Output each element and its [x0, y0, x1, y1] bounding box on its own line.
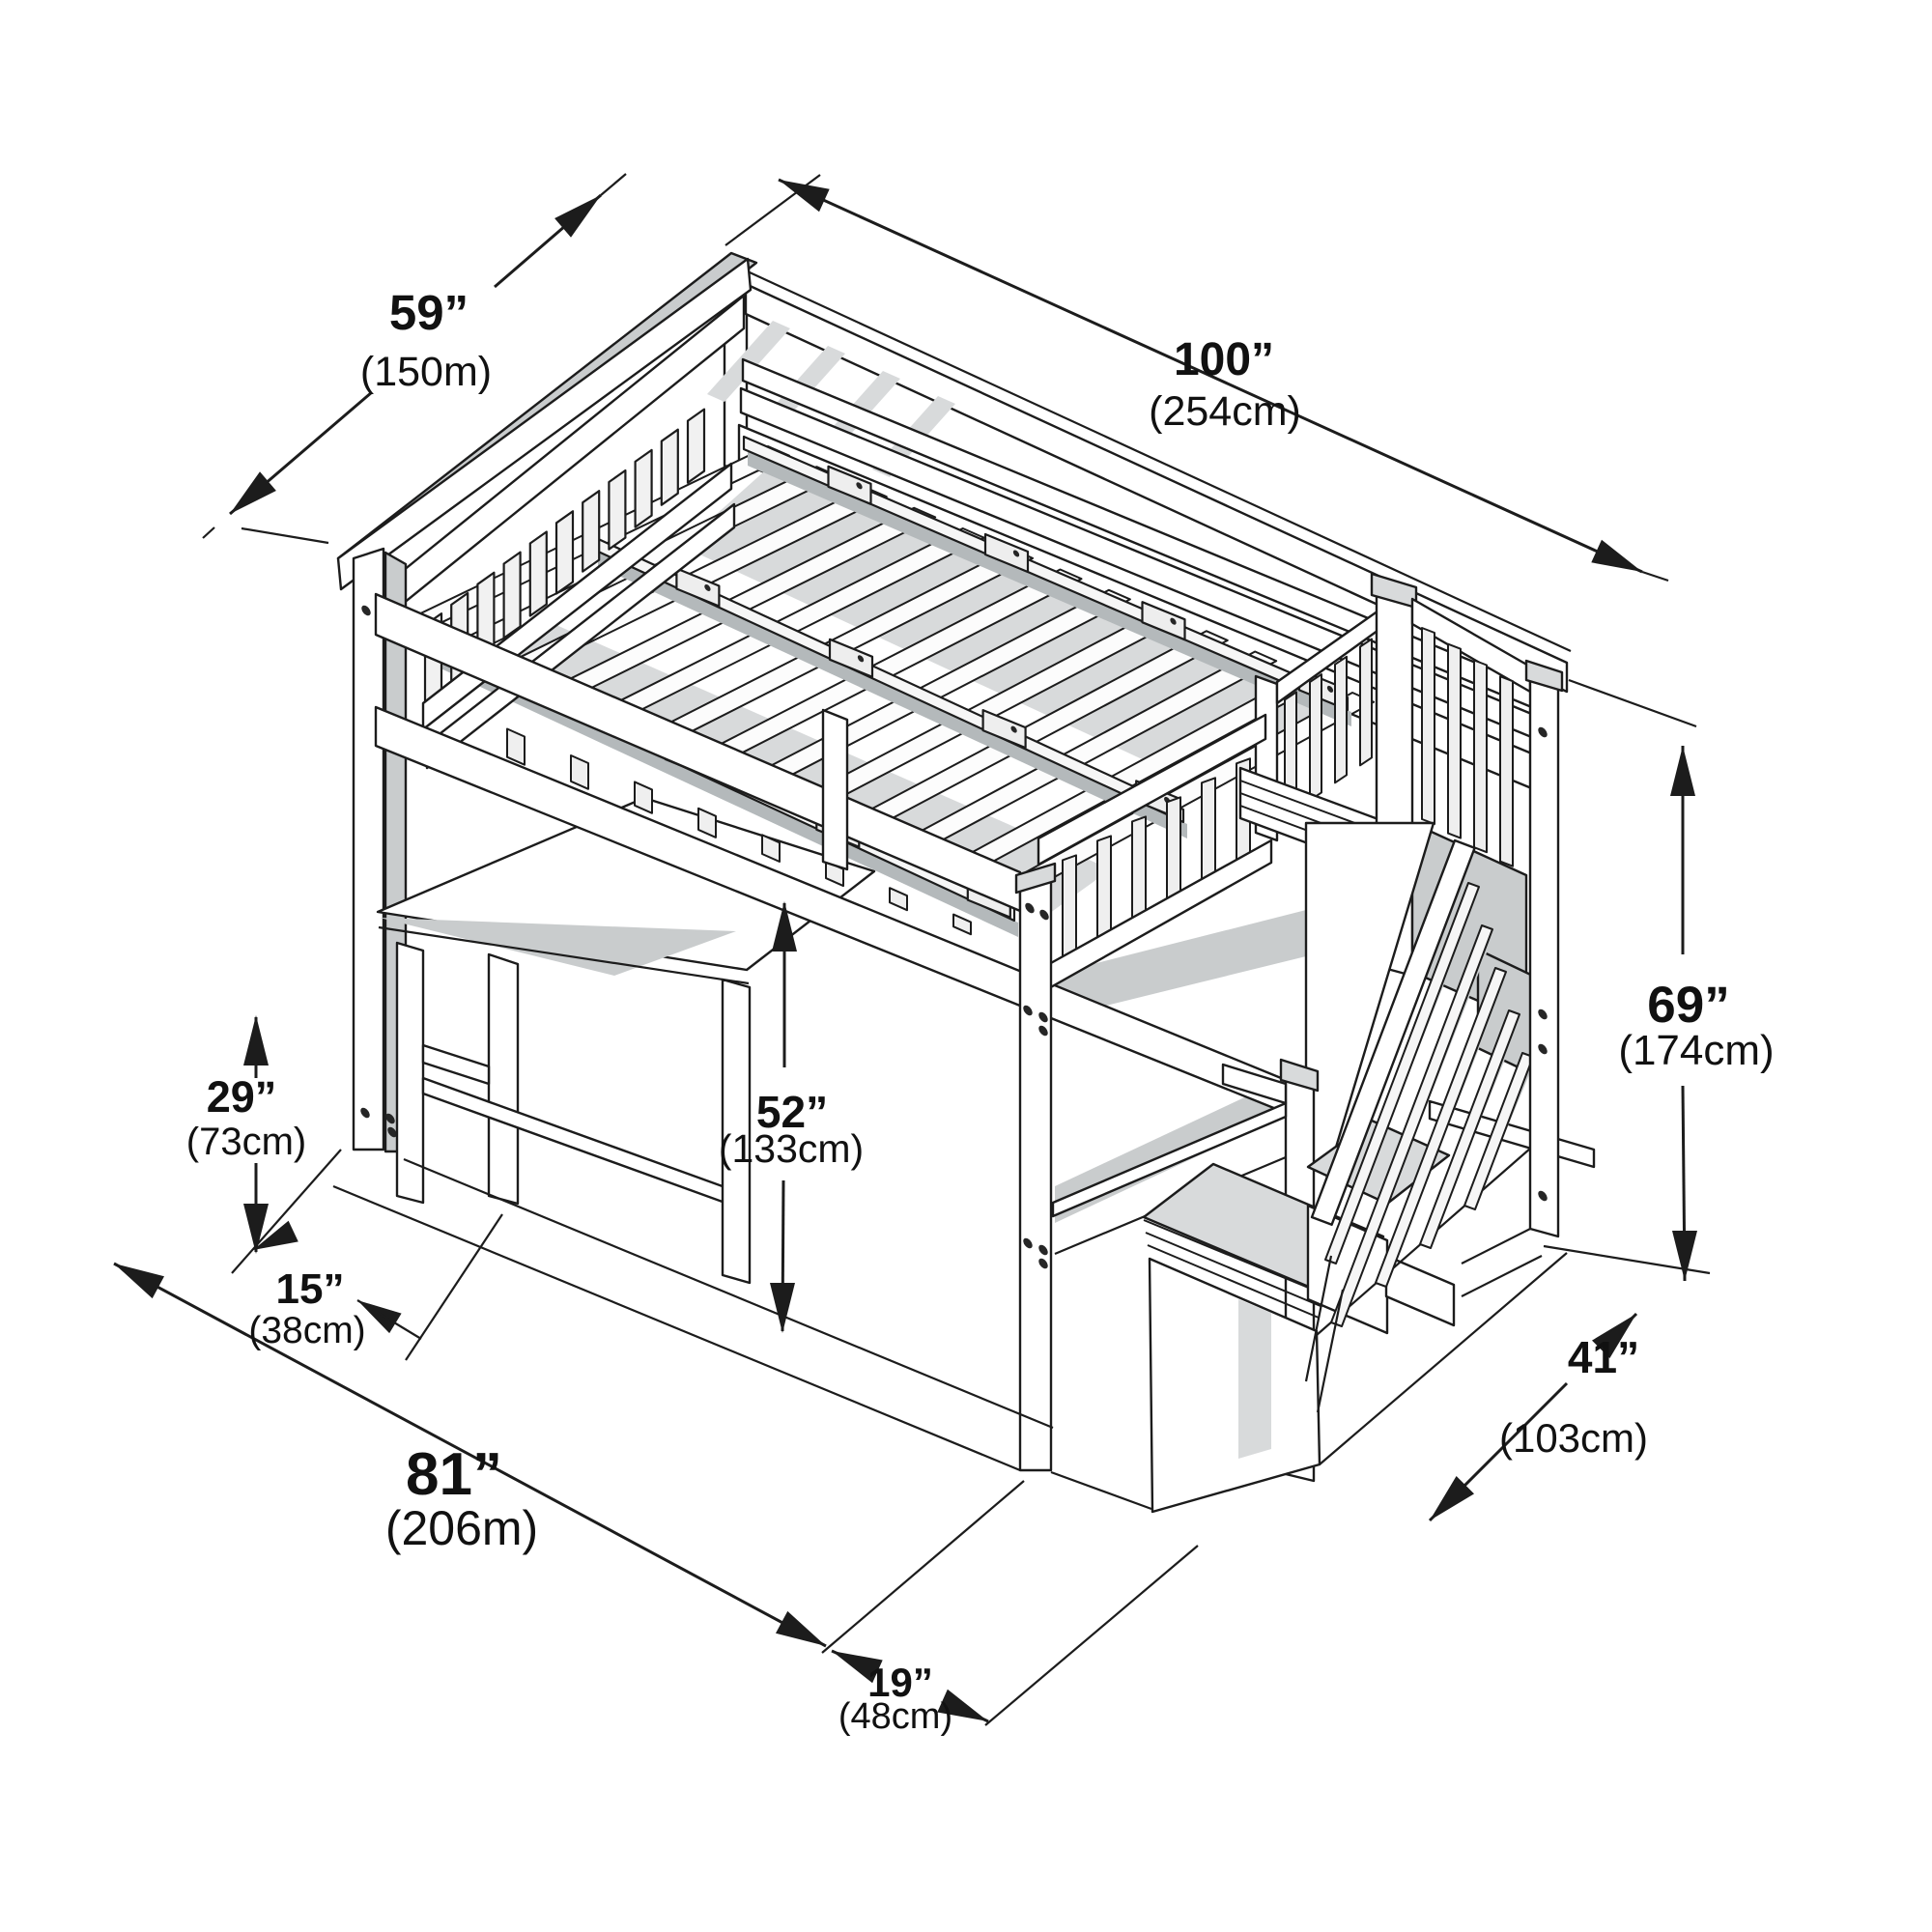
svg-text:(73cm): (73cm): [186, 1121, 306, 1163]
svg-text:69”: 69”: [1647, 977, 1729, 1034]
svg-text:(254cm): (254cm): [1149, 388, 1301, 435]
svg-text:(206m): (206m): [385, 1501, 538, 1555]
svg-text:15”: 15”: [276, 1265, 345, 1313]
svg-text:(133cm): (133cm): [719, 1126, 864, 1171]
svg-text:100”: 100”: [1174, 334, 1274, 385]
svg-text:(103cm): (103cm): [1499, 1415, 1648, 1461]
svg-text:41”: 41”: [1568, 1332, 1639, 1382]
svg-text:29”: 29”: [207, 1072, 277, 1122]
svg-text:(174cm): (174cm): [1618, 1027, 1774, 1074]
svg-text:81”: 81”: [406, 1441, 502, 1508]
svg-text:(150m): (150m): [360, 349, 492, 395]
svg-text:(48cm): (48cm): [838, 1696, 952, 1737]
svg-text:59”: 59”: [389, 285, 469, 340]
svg-text:(38cm): (38cm): [248, 1310, 365, 1351]
